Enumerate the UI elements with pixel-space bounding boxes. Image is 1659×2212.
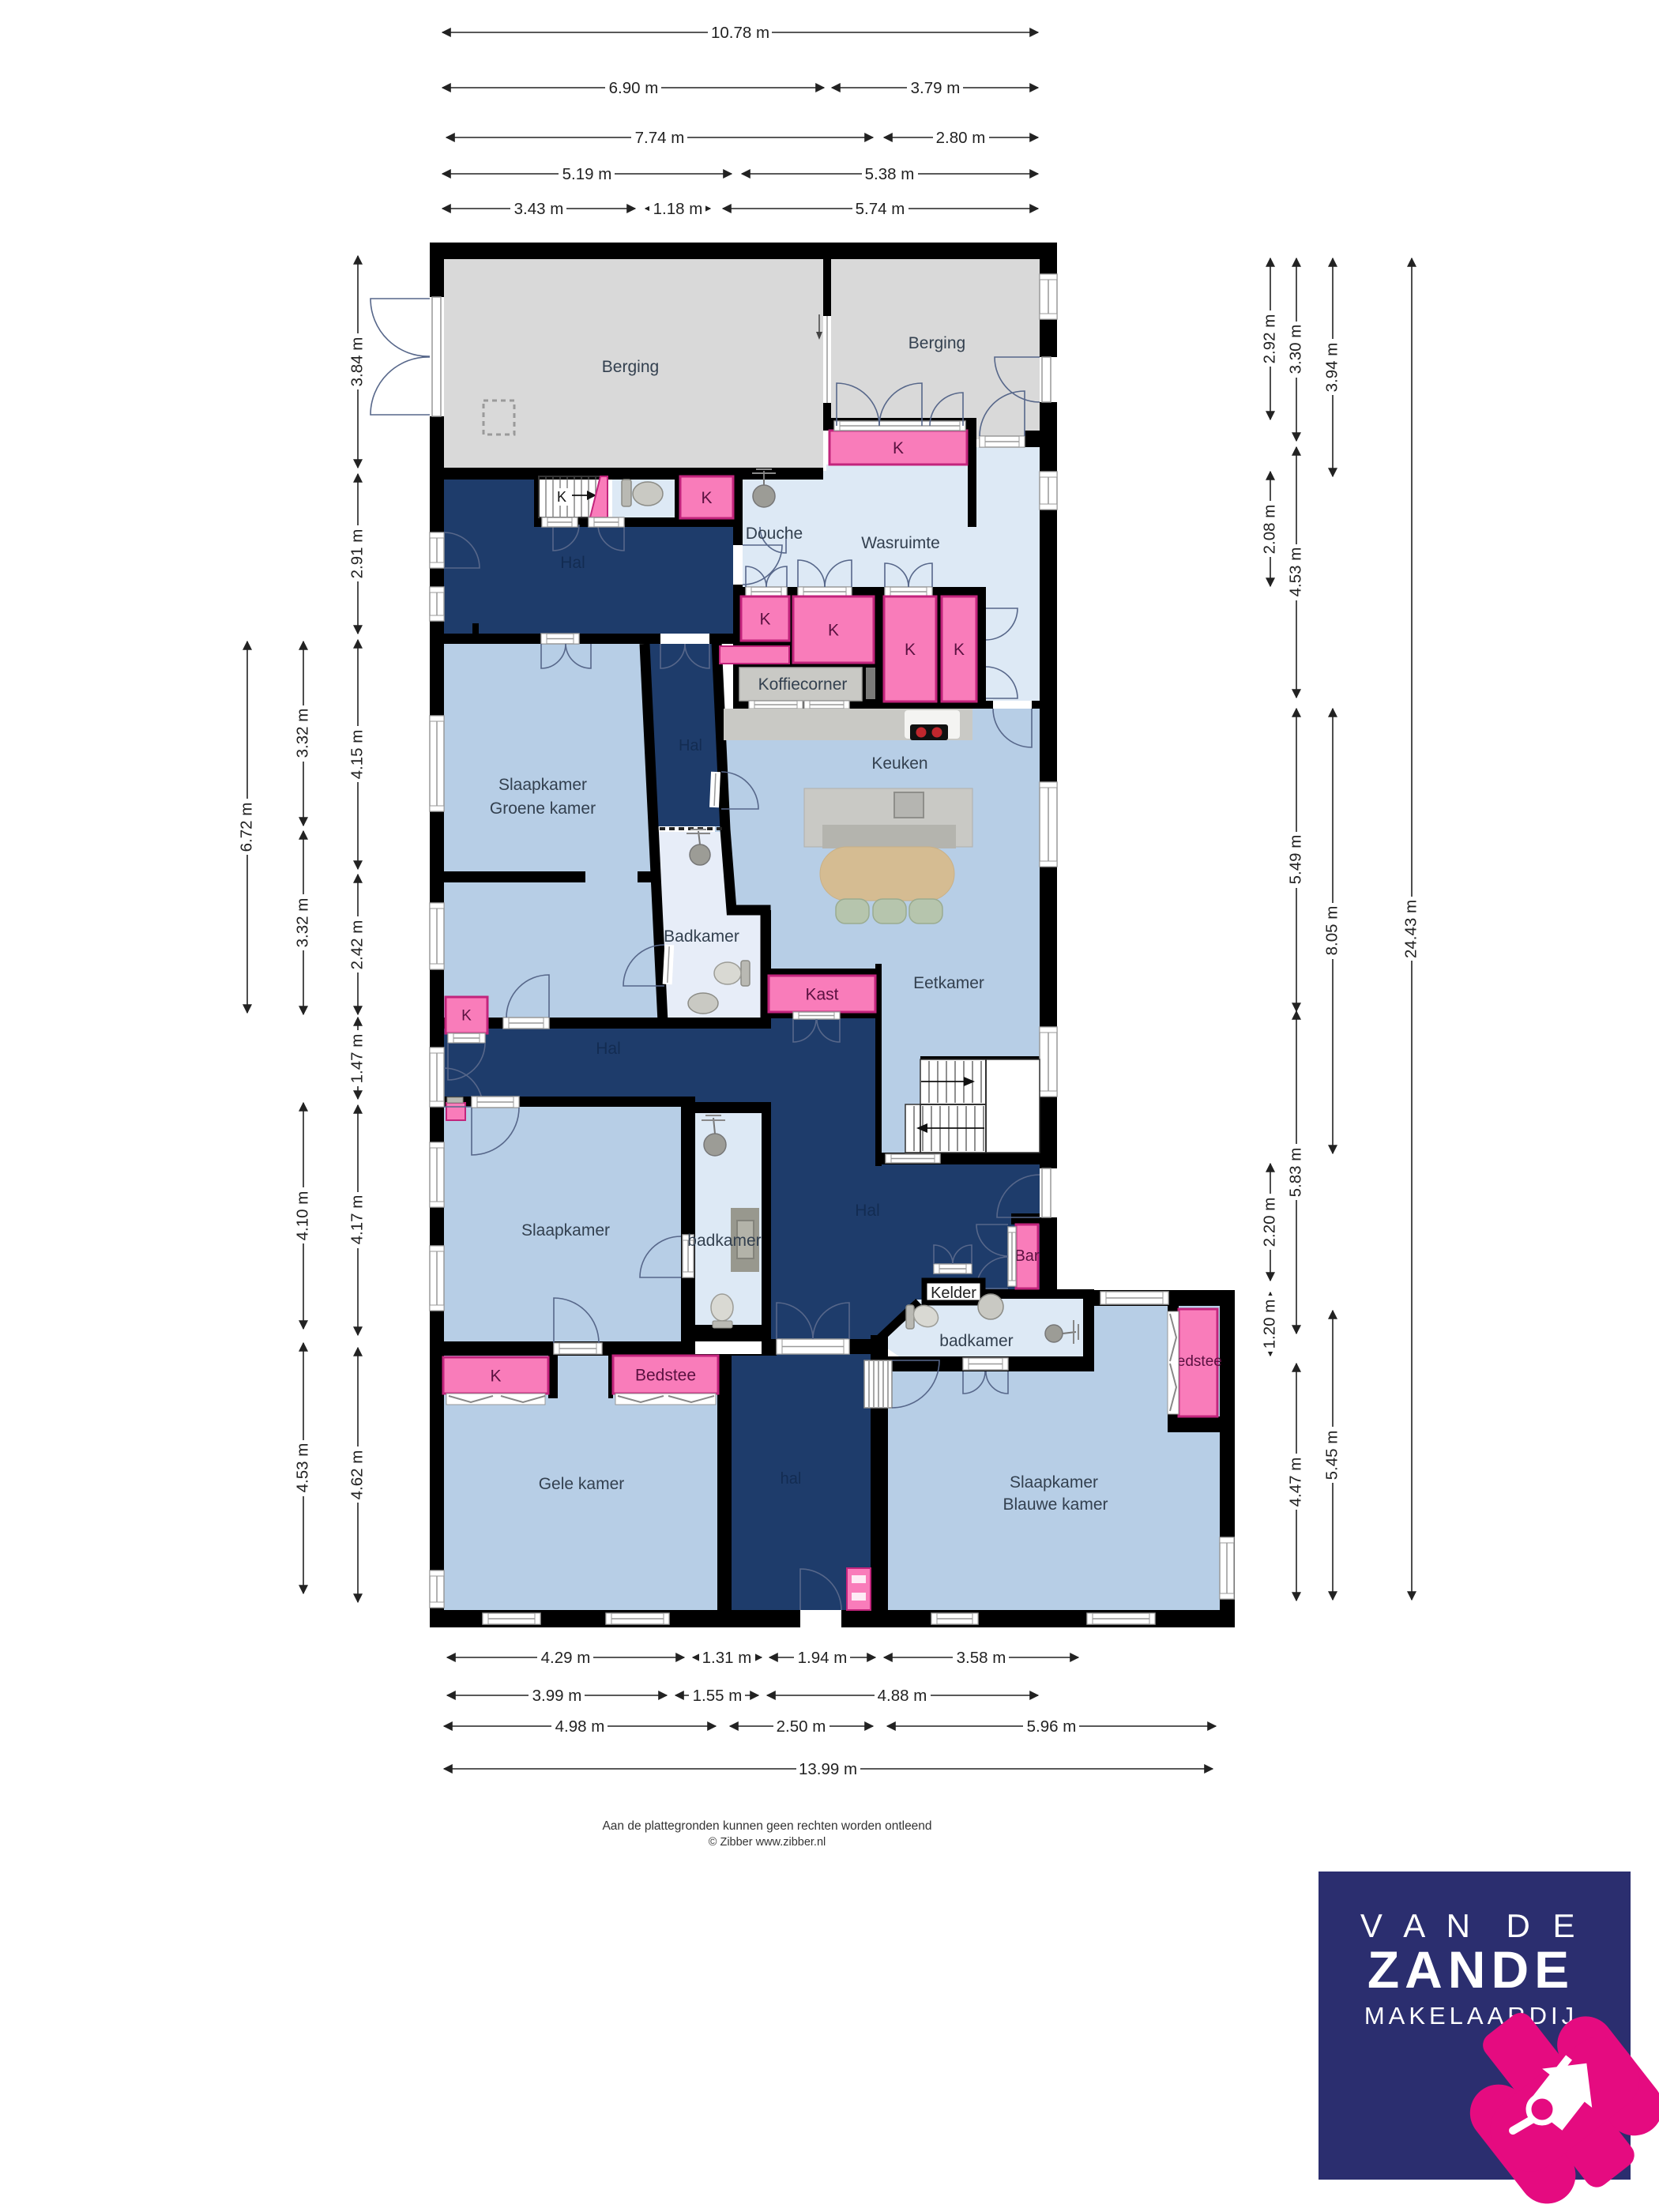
svg-text:Blauwe kamer: Blauwe kamer [1003, 1495, 1108, 1514]
svg-text:Aan de plattegronden kunnen ge: Aan de plattegronden kunnen geen rechten… [602, 1819, 931, 1833]
svg-text:4.47 m: 4.47 m [1286, 1458, 1304, 1507]
svg-text:5.19 m: 5.19 m [562, 165, 612, 183]
svg-text:Badkamer: Badkamer [664, 927, 739, 946]
svg-text:Keuken: Keuken [871, 754, 927, 773]
svg-text:Wasruimte: Wasruimte [861, 534, 940, 552]
svg-text:2.91 m: 2.91 m [348, 529, 366, 579]
svg-text:K: K [759, 610, 770, 628]
svg-text:K: K [828, 621, 839, 639]
svg-text:Slaapkamer: Slaapkamer [498, 776, 587, 794]
svg-text:K: K [557, 489, 566, 505]
svg-text:6.90 m: 6.90 m [609, 79, 659, 97]
svg-text:4.53 m: 4.53 m [1286, 547, 1304, 597]
svg-text:© Zibber www.zibber.nl: © Zibber www.zibber.nl [709, 1836, 826, 1849]
svg-text:badkamer: badkamer [939, 1332, 1013, 1350]
svg-text:1.20 m: 1.20 m [1260, 1300, 1278, 1349]
svg-text:5.74 m: 5.74 m [856, 200, 905, 218]
svg-text:Slaapkamer: Slaapkamer [1010, 1473, 1098, 1492]
svg-text:2.42 m: 2.42 m [348, 920, 366, 970]
svg-text:7.74 m: 7.74 m [635, 129, 685, 147]
svg-text:Slaapkamer: Slaapkamer [521, 1221, 610, 1240]
svg-text:2.08 m: 2.08 m [1260, 505, 1278, 555]
svg-text:badkamer: badkamer [687, 1232, 761, 1250]
svg-text:6.72 m: 6.72 m [237, 803, 255, 852]
svg-text:ZANDE: ZANDE [1367, 1940, 1574, 1999]
svg-text:4.10 m: 4.10 m [293, 1191, 311, 1241]
svg-text:5.45 m: 5.45 m [1322, 1431, 1341, 1480]
svg-text:Bar: Bar [1014, 1247, 1039, 1265]
svg-text:5.83 m: 5.83 m [1286, 1148, 1304, 1198]
svg-text:3.84 m: 3.84 m [348, 337, 366, 387]
svg-text:3.32 m: 3.32 m [293, 709, 311, 758]
svg-text:13.99 m: 13.99 m [799, 1760, 857, 1778]
svg-text:8.05 m: 8.05 m [1322, 906, 1341, 956]
svg-text:1.18 m: 1.18 m [653, 200, 703, 218]
svg-text:K: K [905, 641, 916, 659]
svg-text:10.78 m: 10.78 m [711, 24, 769, 42]
svg-text:2.20 m: 2.20 m [1260, 1198, 1278, 1247]
svg-text:Gele kamer: Gele kamer [539, 1475, 625, 1493]
svg-text:2.80 m: 2.80 m [936, 129, 986, 147]
svg-text:4.17 m: 4.17 m [348, 1195, 366, 1245]
svg-text:Berging: Berging [908, 334, 965, 352]
svg-text:3.94 m: 3.94 m [1322, 343, 1341, 393]
svg-text:MAKELAARDIJ: MAKELAARDIJ [1364, 2002, 1578, 2030]
svg-text:3.99 m: 3.99 m [532, 1687, 582, 1705]
svg-text:hal: hal [781, 1470, 802, 1488]
svg-text:1.55 m: 1.55 m [693, 1687, 743, 1705]
svg-text:Hal: Hal [560, 554, 585, 572]
svg-text:Kast: Kast [805, 985, 838, 1003]
svg-text:Groene kamer: Groene kamer [490, 799, 596, 818]
svg-text:K: K [461, 1008, 472, 1025]
svg-text:5.96 m: 5.96 m [1027, 1717, 1077, 1736]
svg-text:K: K [490, 1367, 501, 1385]
svg-text:1.47 m: 1.47 m [348, 1034, 366, 1084]
svg-text:Hal: Hal [596, 1040, 621, 1058]
svg-text:2.92 m: 2.92 m [1260, 314, 1278, 364]
svg-text:3.58 m: 3.58 m [957, 1649, 1006, 1667]
svg-text:3.43 m: 3.43 m [514, 200, 564, 218]
svg-text:Koffiecorner: Koffiecorner [758, 675, 848, 694]
svg-text:4.62 m: 4.62 m [348, 1450, 366, 1500]
svg-text:5.49 m: 5.49 m [1286, 835, 1304, 885]
svg-text:4.29 m: 4.29 m [541, 1649, 591, 1667]
svg-text:4.88 m: 4.88 m [878, 1687, 927, 1705]
svg-text:3.30 m: 3.30 m [1286, 325, 1304, 374]
svg-text:1.94 m: 1.94 m [798, 1649, 848, 1667]
svg-text:K: K [893, 439, 904, 457]
svg-text:Hal: Hal [855, 1202, 880, 1220]
svg-text:V A N D E: V A N D E [1360, 1907, 1582, 1944]
svg-text:1.31 m: 1.31 m [702, 1649, 752, 1667]
svg-text:4.98 m: 4.98 m [555, 1717, 605, 1736]
svg-text:Bedstee: Bedstee [635, 1366, 696, 1384]
svg-text:3.32 m: 3.32 m [293, 898, 311, 948]
svg-text:K: K [701, 489, 712, 507]
svg-text:4.15 m: 4.15 m [348, 730, 366, 780]
svg-text:Berging: Berging [602, 358, 659, 376]
svg-text:5.38 m: 5.38 m [865, 165, 915, 183]
svg-text:3.79 m: 3.79 m [911, 79, 961, 97]
svg-text:K: K [954, 641, 965, 659]
svg-text:Kelder: Kelder [931, 1285, 976, 1302]
svg-text:2.50 m: 2.50 m [777, 1717, 826, 1736]
svg-text:Douche: Douche [746, 525, 803, 543]
svg-text:4.53 m: 4.53 m [293, 1443, 311, 1493]
svg-text:24.43 m: 24.43 m [1401, 900, 1420, 958]
svg-text:Eetkamer: Eetkamer [913, 974, 984, 992]
svg-text:Hal: Hal [679, 737, 702, 754]
